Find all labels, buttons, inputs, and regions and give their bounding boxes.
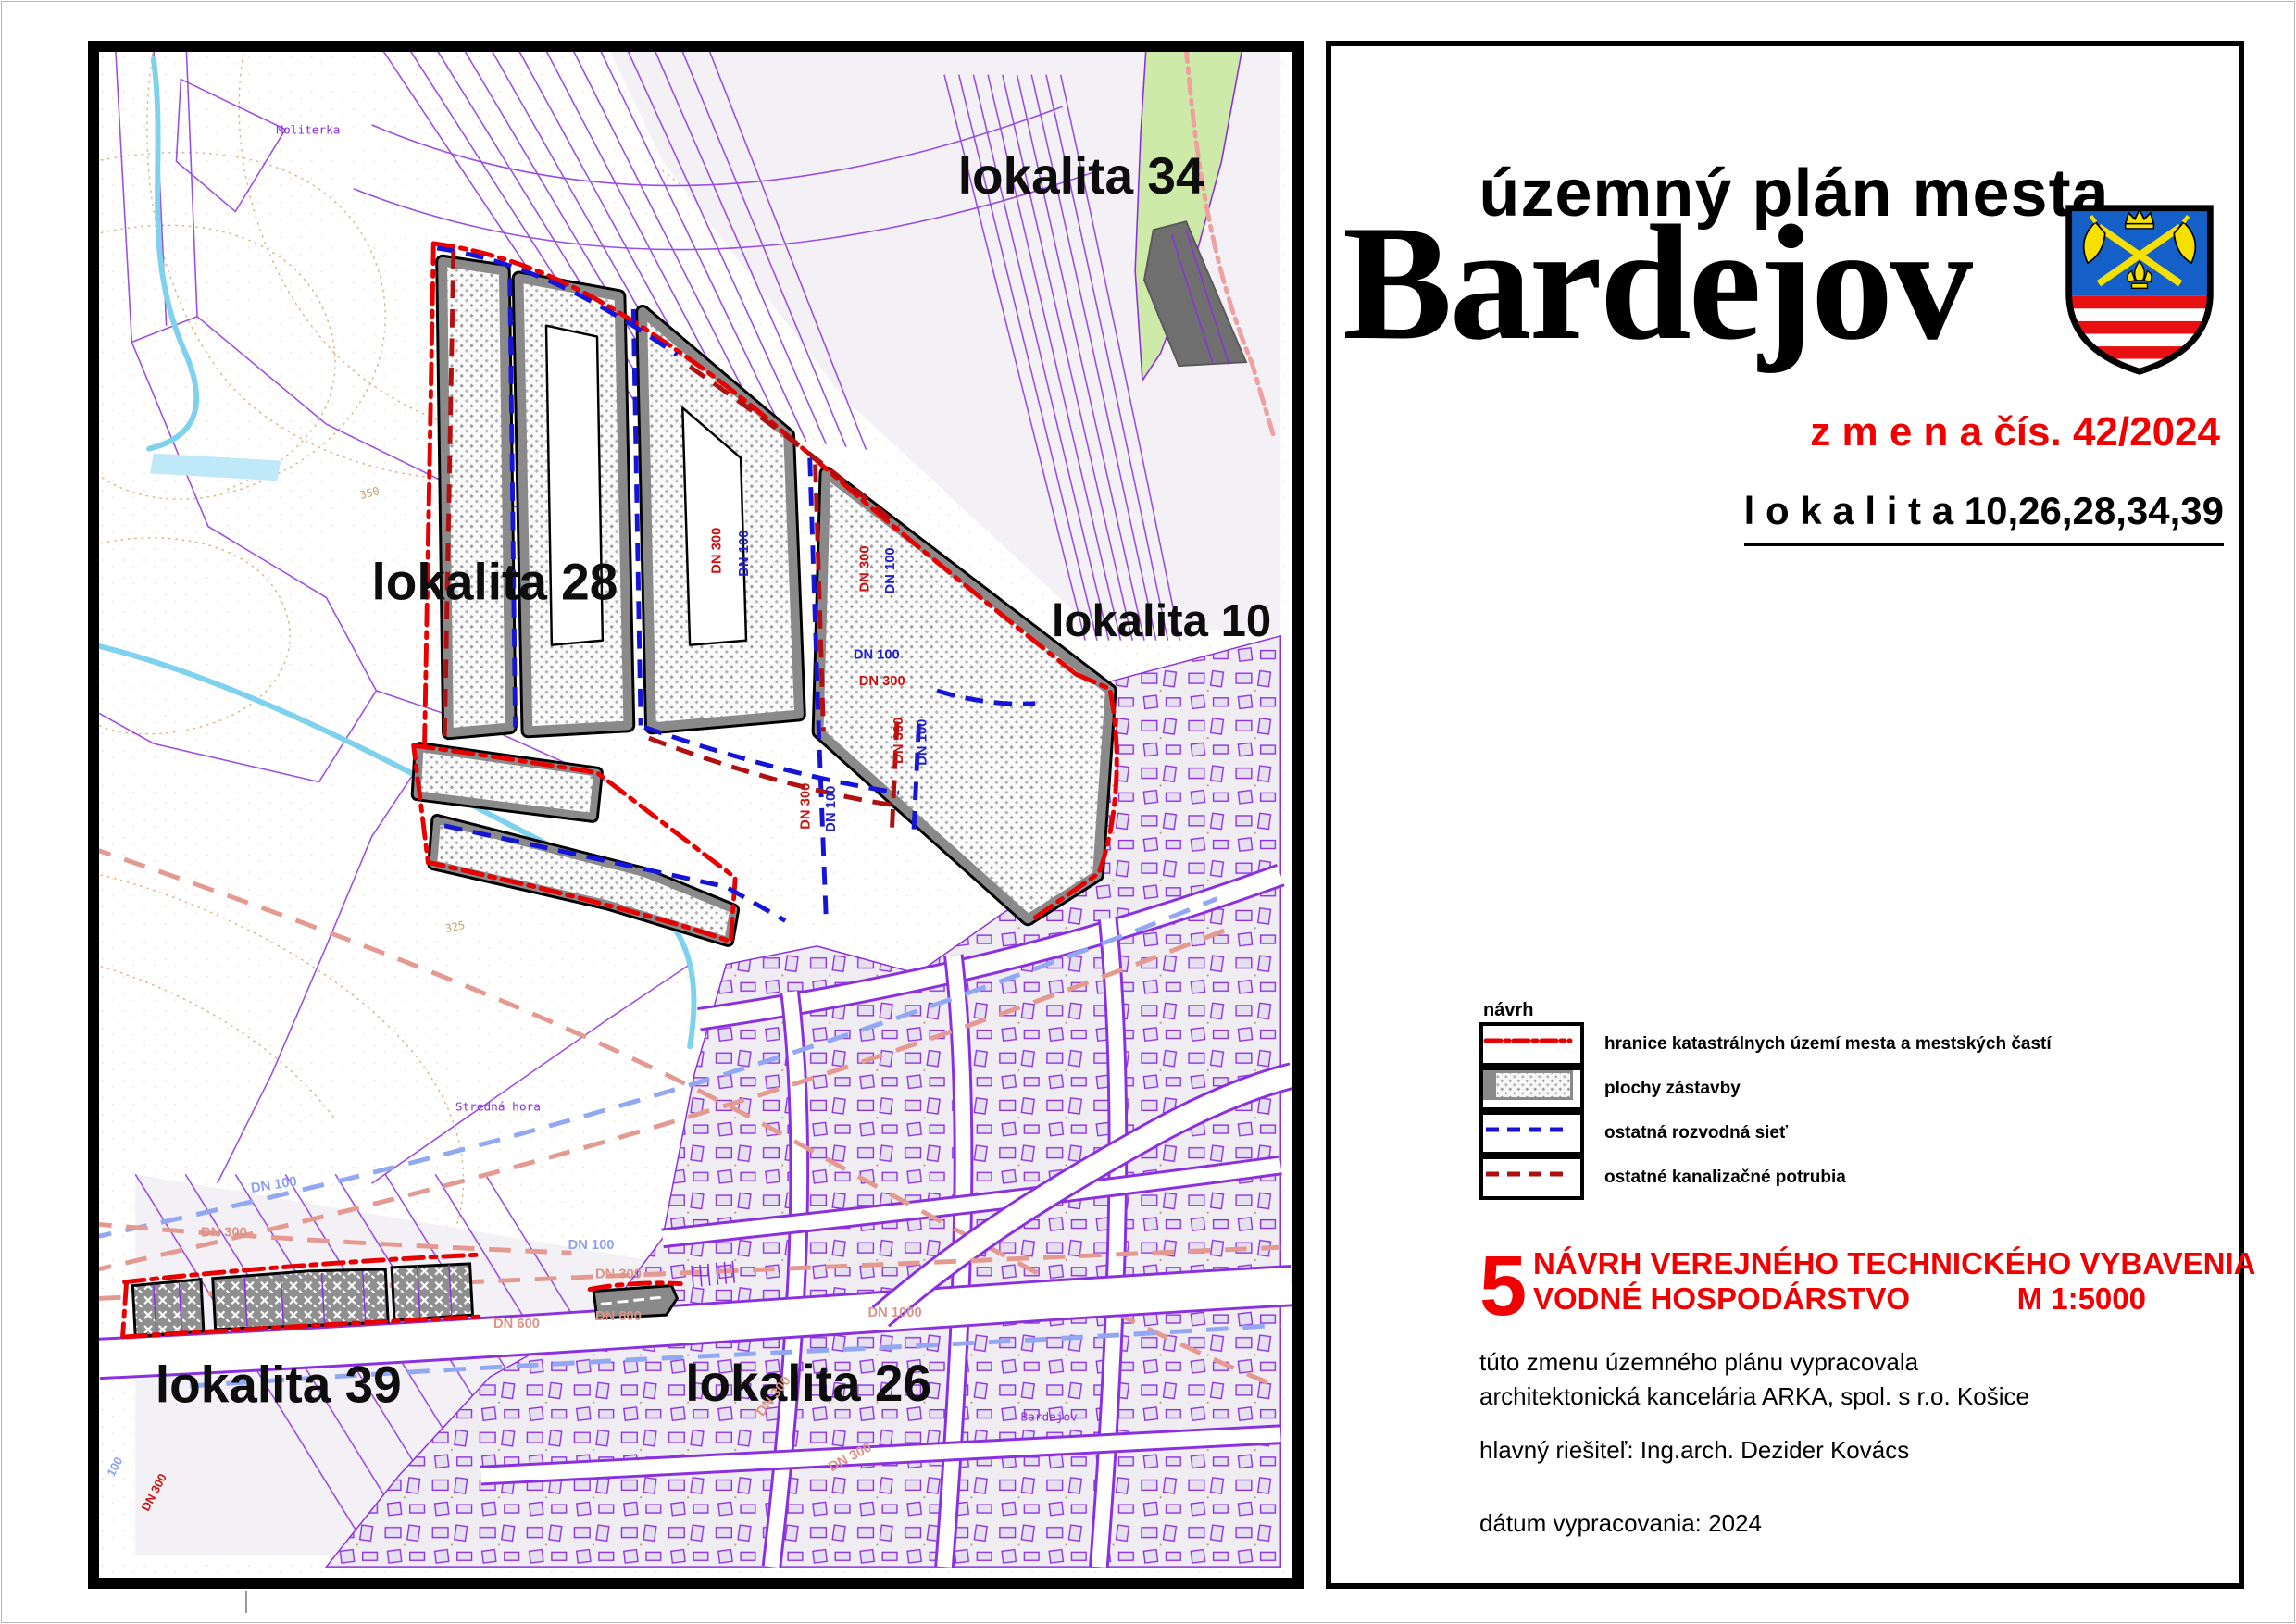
built-area-swatch-icon (1479, 1067, 1584, 1111)
sheet-title-block: 5 NÁVRH VEREJNÉHO TECHNICKÉHO VYBAVENIA … (1479, 1246, 2146, 1317)
sewer-network-swatch-icon (1479, 1156, 1584, 1200)
pipe-label-dn100: DN 100 (824, 786, 839, 832)
legend-label: plochy zástavby (1604, 1079, 1741, 1099)
label-lokalita-26: lokalita 26 (685, 1355, 931, 1412)
credit-line: dátum vypracovania: 2024 (1479, 1509, 1762, 1538)
pipe-label-dn300: DN 300 (710, 528, 725, 574)
pipe-label-dn100: DN 100 (883, 547, 898, 593)
sheet-number: 5 (1479, 1248, 1527, 1325)
map-panel: lokalita 34 lokalita 28 lokalita 10 loka… (88, 41, 1304, 1589)
city-name: Bardejov (1342, 200, 1970, 365)
label-lokalita-34: lokalita 34 (958, 147, 1204, 205)
legend-label: ostatná rozvodná sieť (1604, 1123, 1788, 1143)
label-lokalita-28: lokalita 28 (372, 553, 618, 610)
pipe-label-dn300: DN 300 (201, 1225, 247, 1240)
legend-heading: návrh (1483, 1000, 2052, 1021)
pipe-label-dn300: DN 300 (799, 783, 814, 830)
credit-line: túto zmenu územného plánu vypracovala (1479, 1348, 1918, 1377)
pipe-label-dn300: DN 300 (595, 1268, 642, 1282)
pipe-label-dn300: DN 300 (858, 545, 873, 592)
pipe-label-dn100: DN 100 (915, 719, 930, 766)
pipe-label-dn100: DN 100 (568, 1238, 615, 1253)
margin-tick (245, 1591, 247, 1613)
water-network-swatch-icon (1479, 1111, 1584, 1156)
plan-sheet: lokalita 34 lokalita 28 lokalita 10 loka… (0, 0, 2296, 1624)
pipe-label-dn100: DN 100 (737, 531, 752, 577)
credit-line: architektonická kancelária ARKA, spol. s… (1479, 1382, 2029, 1411)
sheet-scale: M 1:5000 (2017, 1281, 2146, 1317)
sheet-title-line2: VODNÉ HOSPODÁRSTVO (1533, 1281, 1910, 1317)
pipe-label-dn300: DN 300 (859, 674, 905, 689)
legend-label: hranice katastrálnych území mesta a mest… (1604, 1034, 2052, 1055)
label-moliterka: Moliterka (276, 124, 340, 138)
bardejov-coat-of-arms (2055, 202, 2224, 378)
pipe-label-dn100: DN 100 (854, 647, 900, 662)
legend-row-water-network: ostatná rozvodná sieť (1479, 1113, 2052, 1154)
label-bardejov-road: Bardejov (1020, 1410, 1078, 1424)
localities-line: l o k a l i t a 10,26,28,34,39 (1744, 489, 2224, 546)
pipe-label-dn300: DN 300 (892, 718, 906, 764)
label-lokalita-10: lokalita 10 (1052, 595, 1271, 646)
boundary-swatch-icon (1479, 1022, 1584, 1067)
label-stredna-hora: Stredná hora (455, 1100, 541, 1114)
change-number-line: z m e n a čís. 42/2024 (1810, 409, 2220, 456)
legend-row-sewer-network: ostatné kanalizačné potrubia (1479, 1157, 2052, 1198)
title-panel: územný plán mesta Bardejov (1326, 41, 2244, 1589)
pipe-label-dn1000: DN 1000 (868, 1305, 922, 1320)
label-lokalita-39: lokalita 39 (156, 1356, 402, 1414)
pipe-label-dn800: DN 800 (595, 1309, 642, 1324)
legend: návrh hranice katastrálnych území mesta … (1479, 1000, 2052, 1202)
legend-row-built-area: plochy zástavby (1479, 1068, 2052, 1109)
legend-label: ostatné kanalizačné potrubia (1604, 1168, 1846, 1188)
sheet-title-line1: NÁVRH VEREJNÉHO TECHNICKÉHO VYBAVENIA (1533, 1246, 2146, 1281)
legend-row-boundary: hranice katastrálnych území mesta a mest… (1479, 1024, 2052, 1065)
pipe-label-dn600: DN 600 (493, 1317, 540, 1331)
credit-line: hlavný riešiteľ: Ing.arch. Dezider Kovác… (1479, 1436, 1909, 1465)
cadastral-map: lokalita 34 lokalita 28 lokalita 10 loka… (99, 52, 1292, 1578)
